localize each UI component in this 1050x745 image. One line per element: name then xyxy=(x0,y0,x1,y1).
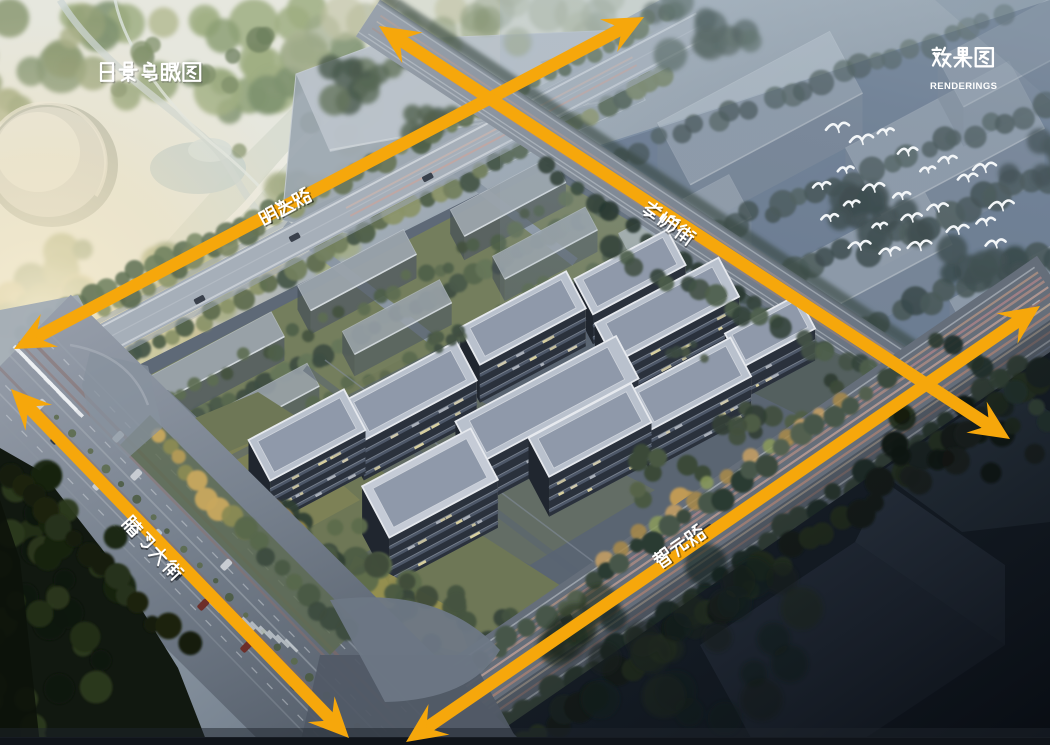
svg-text:RENDERINGS: RENDERINGS xyxy=(930,81,997,92)
